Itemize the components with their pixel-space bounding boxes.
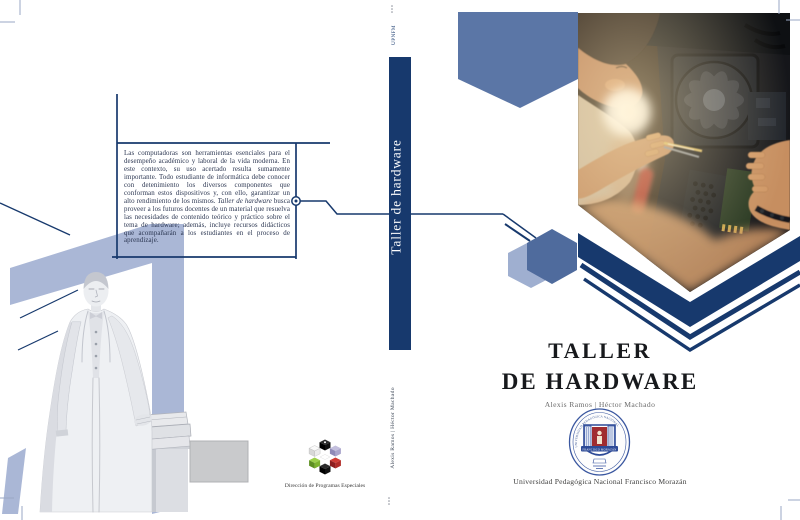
university-seal: UNIVERSIDAD PEDAGÓGICA NACIONAL FRANCISC… <box>570 409 630 475</box>
spine-title: Taller de hardware <box>389 139 404 254</box>
front-authors: Alexis Ramos | Héctor Machado <box>455 400 745 409</box>
periwinkle-sliver <box>2 448 26 514</box>
slate-pentagon <box>458 12 578 108</box>
spine-publisher: UPNFM <box>391 25 397 45</box>
connector-stub <box>505 224 530 241</box>
university-name: Universidad Pedagógica Nacional Francisc… <box>455 477 745 486</box>
navy-diagonal-line <box>0 203 70 235</box>
placeholder-logo <box>190 441 248 482</box>
seal-banner-text: FRANCISCO MORAZÁN <box>583 448 617 451</box>
spine-top-mark <box>391 5 393 13</box>
dpe-logo-label: Dirección de Programas Especiales <box>262 483 388 489</box>
book-cover-spread: UPNFM Taller de hardware Alexis Ramos | … <box>0 0 800 520</box>
dpe-cubes-logo <box>309 440 341 475</box>
back-cover-blurb: Las computadoras son herramientas esenci… <box>124 150 290 245</box>
spine-bottom-mark <box>388 497 390 505</box>
cover-graphics: UPNFM Taller de hardware Alexis Ramos | … <box>0 0 800 520</box>
blurb-text-after: busca proveer a los futuros docentes de … <box>124 198 290 245</box>
blurb-text: Las computadoras son herramientas esenci… <box>124 150 290 205</box>
navy-diagonal-line <box>18 331 58 350</box>
spine-authors: Alexis Ramos | Héctor Machado <box>390 387 396 469</box>
title-line-1: TALLER <box>455 339 745 363</box>
front-title-block: TALLER DE HARDWARE Alexis Ramos | Héctor… <box>455 339 745 409</box>
title-line-2: DE HARDWARE <box>455 369 745 394</box>
blurb-italic-title: Taller de hardware <box>218 198 272 205</box>
